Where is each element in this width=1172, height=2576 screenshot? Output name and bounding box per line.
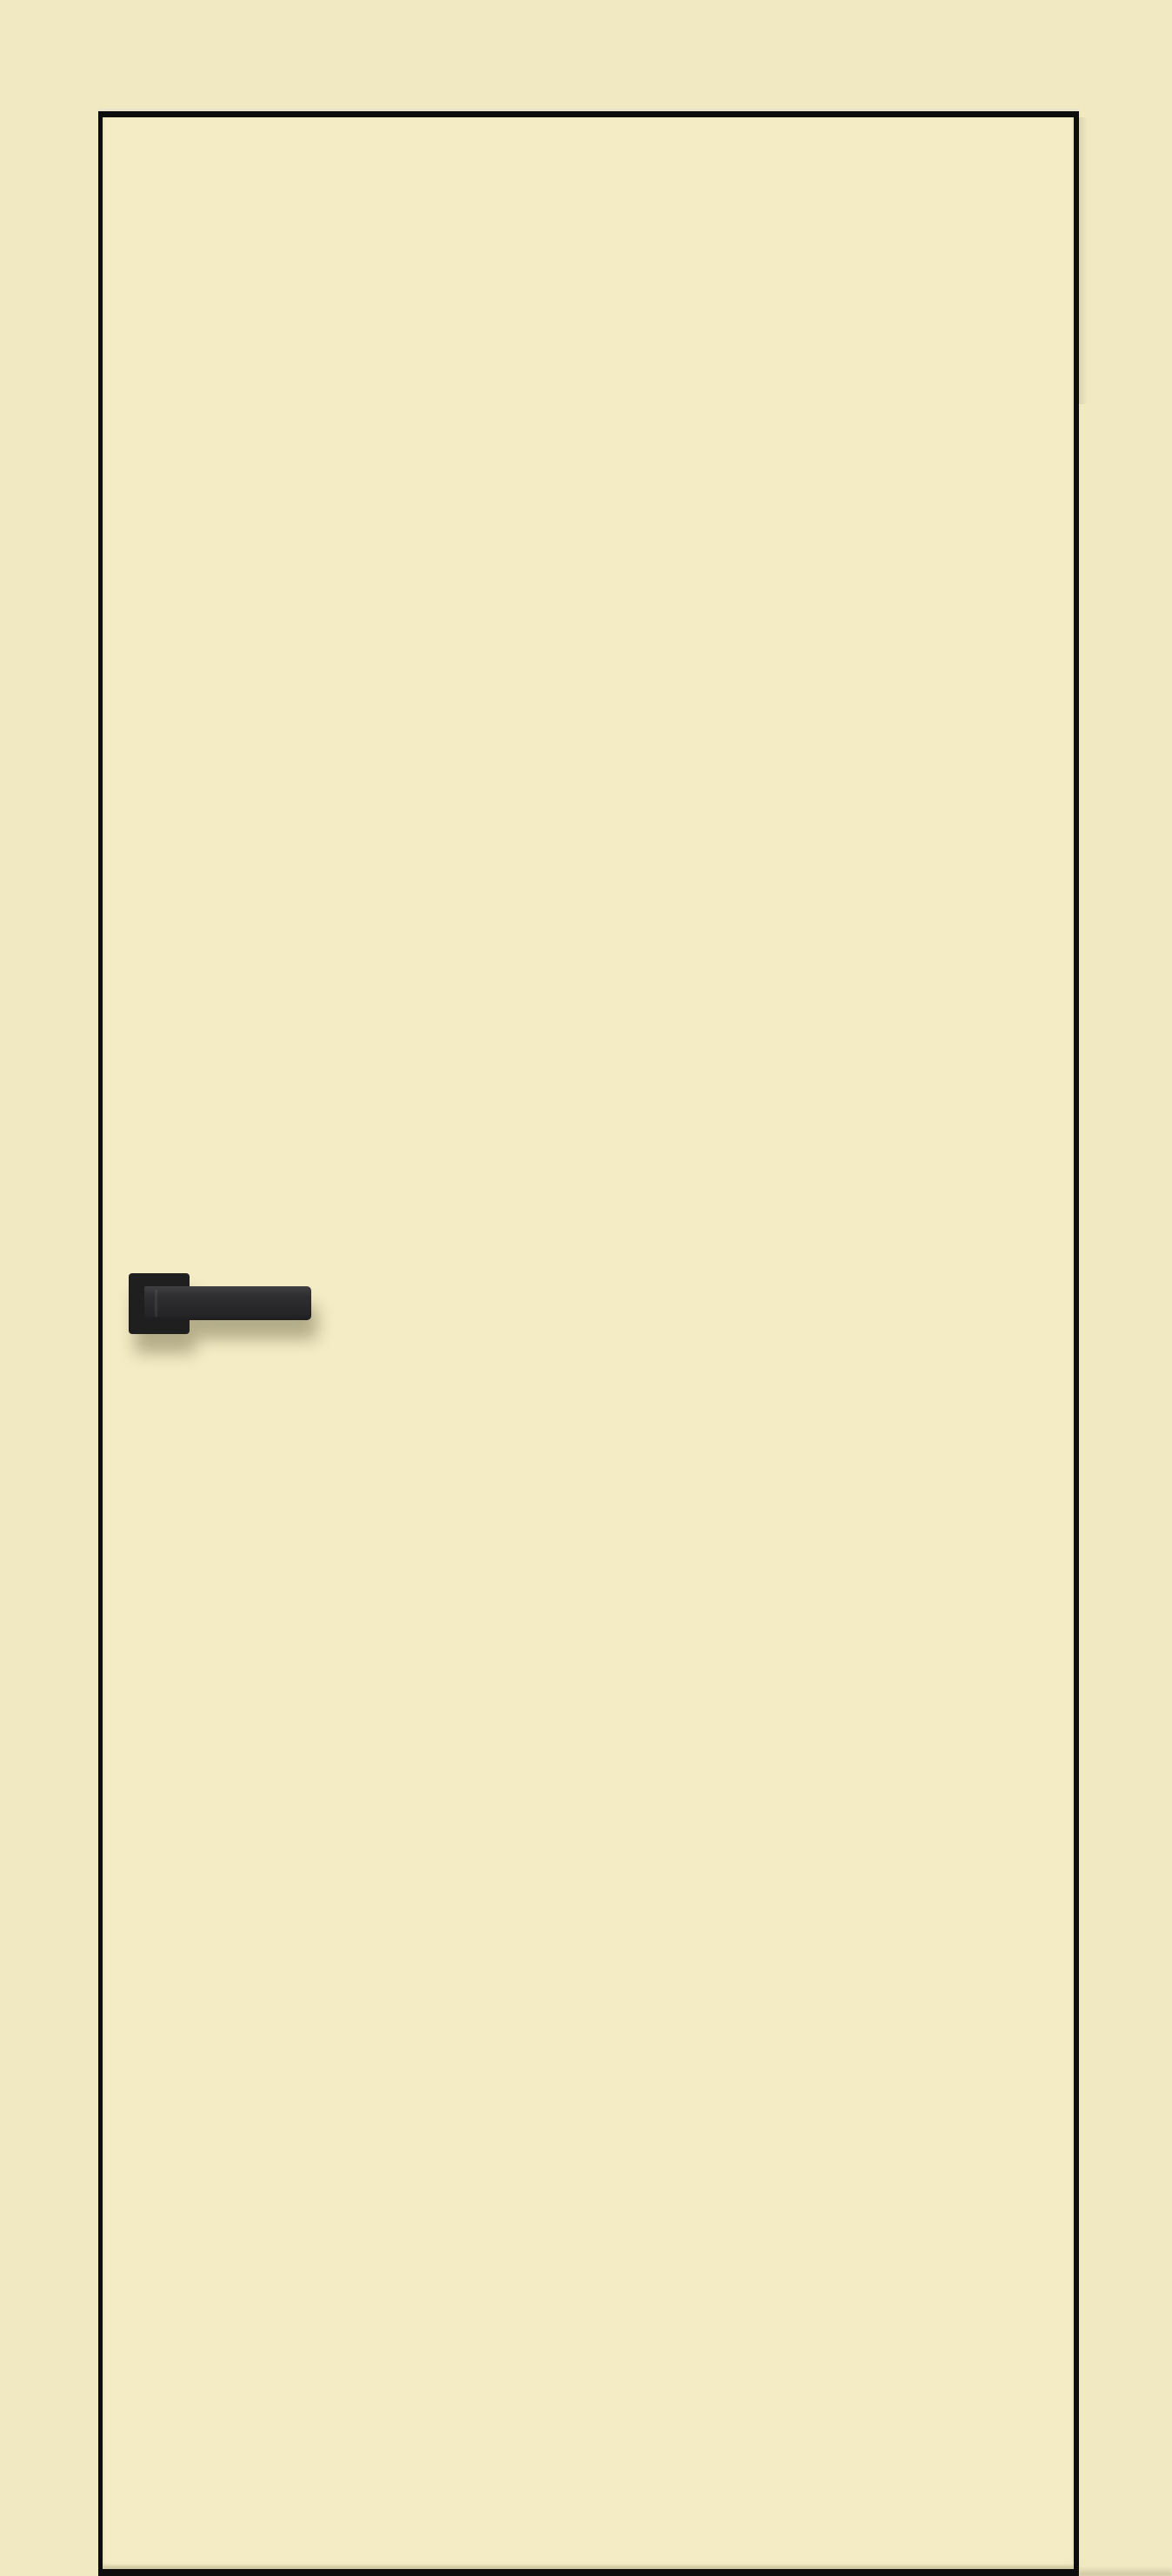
floor-shadow: [1079, 2566, 1172, 2576]
door-leaf: [98, 111, 1079, 2576]
handle-lever: [144, 1286, 311, 1320]
door-edge-shadow: [1079, 117, 1088, 404]
door-product-photo: [0, 0, 1172, 2576]
